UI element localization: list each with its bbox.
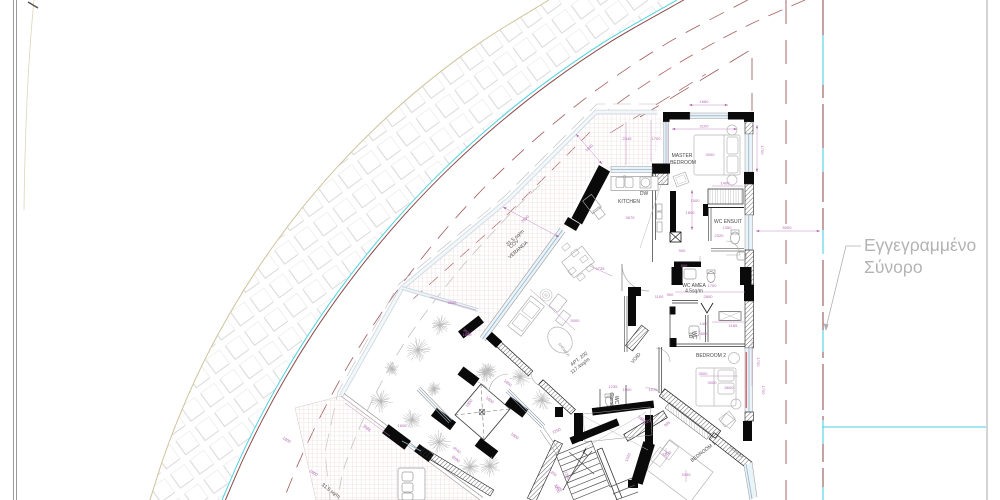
svg-text:2345: 2345 <box>623 136 633 141</box>
svg-text:KITCHEN: KITCHEN <box>618 199 640 205</box>
svg-text:2800: 2800 <box>704 294 714 299</box>
svg-text:9735: 9735 <box>596 266 606 271</box>
svg-text:Εγγεγραμμένο: Εγγεγραμμένο <box>864 235 976 255</box>
svg-text:BEDROOM 2: BEDROOM 2 <box>696 353 726 359</box>
svg-text:5000: 5000 <box>783 225 793 230</box>
svg-text:900: 900 <box>667 292 674 297</box>
svg-text:900: 900 <box>681 263 688 268</box>
svg-text:5000: 5000 <box>571 318 581 323</box>
svg-text:3588: 3588 <box>448 300 458 305</box>
svg-text:3000: 3000 <box>706 152 716 157</box>
svg-text:1350: 1350 <box>723 225 733 230</box>
svg-text:WC: WC <box>613 396 619 405</box>
svg-text:1700: 1700 <box>761 386 766 396</box>
svg-text:800: 800 <box>701 331 708 336</box>
svg-text:1400: 1400 <box>700 321 710 326</box>
svg-text:2320: 2320 <box>715 233 725 238</box>
svg-text:1680: 1680 <box>700 99 710 104</box>
svg-text:3675: 3675 <box>626 215 636 220</box>
svg-text:3335: 3335 <box>682 472 692 477</box>
svg-text:8600: 8600 <box>725 385 735 390</box>
svg-text:900: 900 <box>679 248 686 253</box>
svg-text:1185: 1185 <box>729 323 738 328</box>
svg-text:1235: 1235 <box>609 384 619 389</box>
svg-text:3100: 3100 <box>700 124 710 129</box>
svg-text:1600: 1600 <box>463 332 473 337</box>
svg-text:1400: 1400 <box>721 181 731 186</box>
svg-text:WC: WC <box>691 331 697 340</box>
svg-text:1000: 1000 <box>623 387 633 392</box>
svg-text:4.5sq/m: 4.5sq/m <box>685 289 703 295</box>
svg-text:WC ENSUIT: WC ENSUIT <box>714 219 742 225</box>
svg-text:1100: 1100 <box>655 294 664 299</box>
svg-text:1075: 1075 <box>649 387 659 392</box>
svg-text:1800: 1800 <box>686 210 696 215</box>
svg-text:1000: 1000 <box>691 198 701 203</box>
svg-text:1700: 1700 <box>708 283 718 288</box>
svg-text:DW: DW <box>640 191 649 197</box>
svg-text:BEDROOM: BEDROOM <box>670 160 696 166</box>
svg-text:Σύνορο: Σύνορο <box>864 257 923 277</box>
svg-text:3000: 3000 <box>708 380 718 385</box>
svg-text:MASTER: MASTER <box>672 153 693 159</box>
svg-text:1700: 1700 <box>760 146 765 156</box>
svg-text:1600: 1600 <box>398 423 408 428</box>
svg-text:3000: 3000 <box>699 371 709 376</box>
svg-text:1700: 1700 <box>652 136 662 141</box>
svg-text:1700: 1700 <box>756 358 761 368</box>
